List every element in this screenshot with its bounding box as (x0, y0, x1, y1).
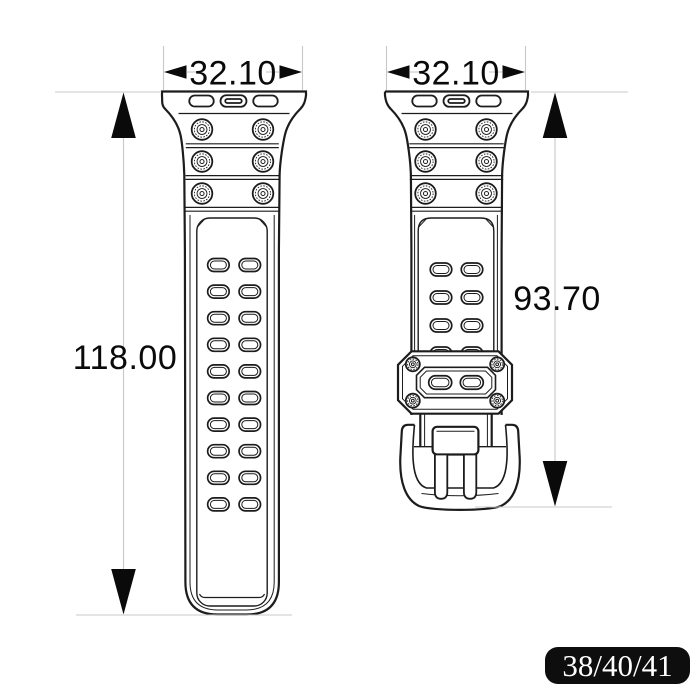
left-width-dimension: 32.10 (164, 46, 303, 93)
right-inner-panel (418, 218, 494, 352)
arrow-left-icon (387, 65, 410, 78)
arrow-down-icon (111, 569, 136, 615)
buckle-prong-right (464, 455, 476, 499)
left-width-label: 32.10 (189, 55, 277, 93)
buckle-prong-left (435, 455, 447, 499)
right-adapter-slots (412, 95, 501, 107)
arrow-right-icon (280, 65, 303, 78)
arrow-right-icon (503, 65, 526, 78)
arrow-down-icon (543, 461, 568, 507)
right-strap-screws (415, 119, 497, 204)
left-inner-edge (190, 215, 274, 610)
keeper (398, 351, 512, 413)
left-length-label: 118.00 (73, 339, 177, 377)
right-strap-drawing (385, 92, 528, 510)
left-inner-panel (197, 218, 267, 606)
arrow-up-icon (543, 93, 568, 139)
left-panel-accents (198, 219, 266, 597)
arrow-up-icon (111, 93, 136, 139)
arrow-left-icon (164, 65, 187, 78)
size-badge-label: 38/40/41 (562, 648, 672, 684)
right-panel-accents (419, 219, 493, 226)
buckle (400, 425, 520, 510)
watch-strap-dimension-drawing: 32.10 32.10 118.00 93.70 (0, 0, 700, 700)
right-strap-holes (430, 263, 483, 360)
size-badge: 38/40/41 (545, 647, 690, 684)
right-length-dimension: 93.70 (475, 92, 628, 507)
right-length-label: 93.70 (513, 280, 601, 318)
left-strap-drawing (162, 92, 306, 615)
right-width-dimension: 32.10 (387, 46, 526, 93)
left-strap-outline (162, 92, 306, 615)
left-strap-screws (192, 119, 274, 204)
right-inner-edges (415, 215, 498, 352)
left-strap-holes (208, 259, 261, 511)
left-adapter-slots (189, 95, 278, 107)
technical-drawing-page: 32.10 32.10 118.00 93.70 38/40/41 (0, 0, 700, 700)
right-width-label: 32.10 (412, 55, 500, 93)
buckle-inner-bottom (422, 494, 499, 496)
